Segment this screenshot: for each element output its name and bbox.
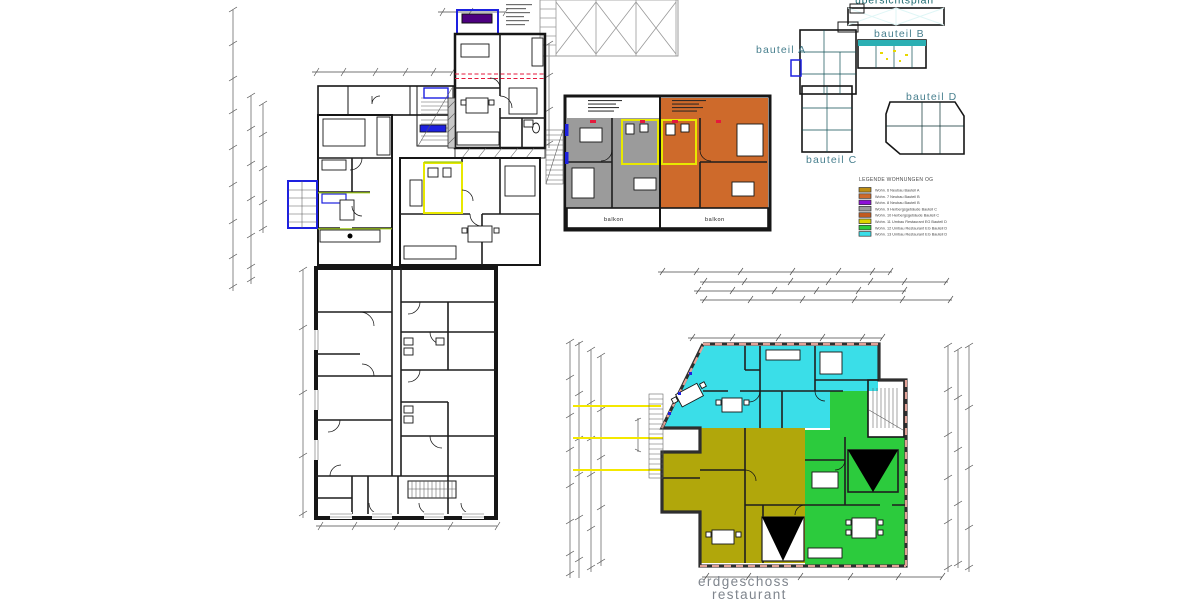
purple-balcony bbox=[457, 10, 498, 34]
svg-text:Wohn. 11 Umbau Restaurant EG B: Wohn. 11 Umbau Restaurant EG Bauteil D bbox=[875, 220, 947, 224]
balkon-label-orange: balkon bbox=[705, 217, 725, 223]
floor-plan-sheet: balkon balkon bbox=[0, 0, 1200, 600]
legend-item: Wohn. 7 Neubau Bauteil B bbox=[859, 194, 920, 199]
keyplan-building-b bbox=[858, 40, 926, 68]
existing-building-plan bbox=[313, 268, 496, 519]
keyplan-building-d bbox=[886, 102, 964, 154]
ground-floor-plan: erdgeschoss restaurant bbox=[566, 334, 973, 600]
upper-floor-plan: balkon balkon bbox=[288, 0, 770, 519]
svg-text:Wohn. 10 Herbergsgebäude Baute: Wohn. 10 Herbergsgebäude Bauteil C bbox=[875, 214, 939, 218]
apartment-purple bbox=[448, 4, 545, 148]
legend-item: Wohn. 6 Neubau Bauteil A bbox=[859, 188, 920, 193]
legend-item: Wohn. 9 Herbergsgebäude Bauteil C bbox=[859, 206, 937, 211]
keyplan-label-d: bauteil D bbox=[906, 91, 957, 103]
building-gray-orange: balkon balkon bbox=[546, 96, 770, 230]
legend-item: Wohn. 11 Umbau Restaurant EG Bauteil D bbox=[859, 219, 947, 224]
apartment-orange-middle bbox=[400, 148, 545, 265]
window-mark bbox=[668, 412, 671, 415]
key-plan: übersichtsplan bbox=[756, 0, 964, 166]
roof-x-braced bbox=[540, 0, 678, 56]
keyplan-label-a: bauteil A bbox=[756, 44, 806, 56]
legend-item: Wohn. 12 Umbau Restaurant EG Bauteil D bbox=[859, 225, 947, 230]
keyplan-building-c bbox=[802, 86, 852, 152]
svg-text:Wohn. 7 Neubau Bauteil B: Wohn. 7 Neubau Bauteil B bbox=[875, 195, 920, 199]
left-dimension-lines bbox=[229, 7, 307, 518]
apartment-gold-wing bbox=[318, 115, 392, 265]
window-mark bbox=[689, 372, 692, 375]
keyplan-title: übersichtsplan bbox=[855, 0, 934, 7]
window-mark bbox=[678, 392, 681, 395]
keyplan-label-c: bauteil C bbox=[806, 154, 857, 166]
legend-item: Wohn. 8 Neubau Bauteil B bbox=[859, 200, 920, 205]
balcony-blue-left bbox=[288, 181, 317, 228]
legend-title: LEGENDE WOHNUNGEN OG bbox=[859, 177, 933, 183]
svg-text:Wohn. 13 Umbau Restaurant EG B: Wohn. 13 Umbau Restaurant EG Bauteil D bbox=[875, 233, 947, 237]
annotation-text-rows bbox=[506, 4, 532, 25]
svg-text:Wohn. 6 Neubau Bauteil A: Wohn. 6 Neubau Bauteil A bbox=[875, 189, 920, 193]
mid-right-dimension-lines bbox=[658, 268, 953, 303]
legend-item: Wohn. 10 Herbergsgebäude Bauteil C bbox=[859, 213, 939, 218]
legend: LEGENDE WOHNUNGEN OG Wohn. 6 Neubau Baut… bbox=[859, 177, 947, 237]
svg-text:Wohn. 9 Herbergsgebäude Bautei: Wohn. 9 Herbergsgebäude Bauteil C bbox=[875, 207, 937, 211]
svg-text:Wohn. 8 Neubau Bauteil B: Wohn. 8 Neubau Bauteil B bbox=[875, 201, 920, 205]
keyplan-roof-bar bbox=[848, 4, 944, 25]
legend-item: Wohn. 13 Umbau Restaurant EG Bauteil D bbox=[859, 232, 947, 237]
ground-floor-label-line2: restaurant bbox=[712, 587, 787, 600]
keyplan-building-a bbox=[791, 22, 858, 94]
balkon-label-gray: balkon bbox=[604, 217, 624, 223]
keyplan-label-b: bauteil B bbox=[874, 28, 925, 40]
upper-corridor bbox=[318, 86, 455, 115]
plan-drawing: balkon balkon bbox=[0, 0, 1200, 600]
svg-text:Wohn. 12 Umbau Restaurant EG B: Wohn. 12 Umbau Restaurant EG Bauteil D bbox=[875, 226, 947, 230]
